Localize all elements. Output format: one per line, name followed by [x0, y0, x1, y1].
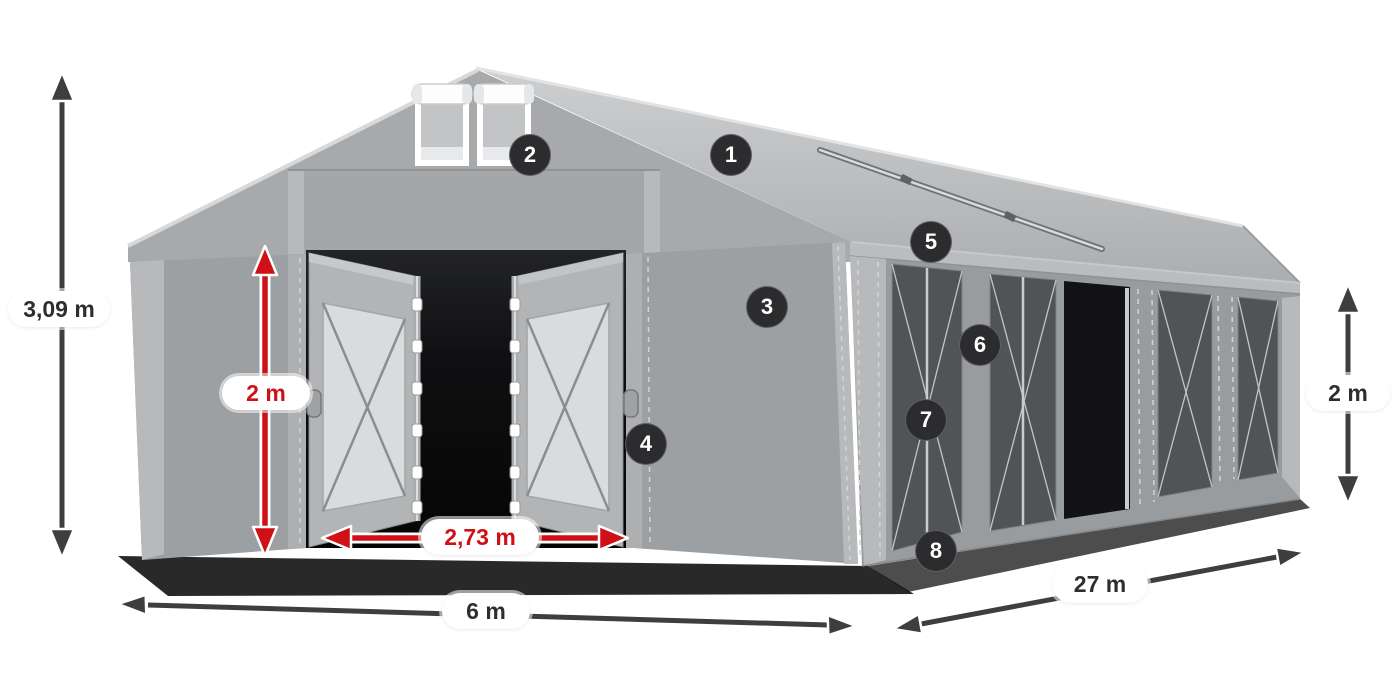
marker-5[interactable]: 5 — [910, 221, 952, 263]
dimension-length: 27 m — [1052, 565, 1148, 603]
dimension-side-height: 2 m — [1306, 375, 1390, 411]
left-door-flap — [309, 253, 422, 547]
dimension-total-height: 3,09 m — [8, 291, 110, 327]
marker-6[interactable]: 6 — [959, 324, 1001, 366]
dimension-entrance-height: 2 m — [222, 376, 310, 410]
marker-7[interactable]: 7 — [905, 399, 947, 441]
right-door-flap — [510, 253, 623, 547]
marker-2[interactable]: 2 — [509, 134, 551, 176]
dimension-entrance-width: 2,73 m — [421, 519, 539, 555]
marker-1[interactable]: 1 — [710, 134, 752, 176]
marker-8[interactable]: 8 — [915, 530, 957, 572]
marker-4[interactable]: 4 — [625, 423, 667, 465]
tent-illustration — [0, 0, 1400, 700]
marker-3[interactable]: 3 — [746, 286, 788, 328]
dimension-width: 6 m — [442, 593, 530, 629]
tent-size-diagram: 3,09 m 2 m 2,73 m 6 m 27 m 2 m 1 2 3 4 5… — [0, 0, 1400, 700]
